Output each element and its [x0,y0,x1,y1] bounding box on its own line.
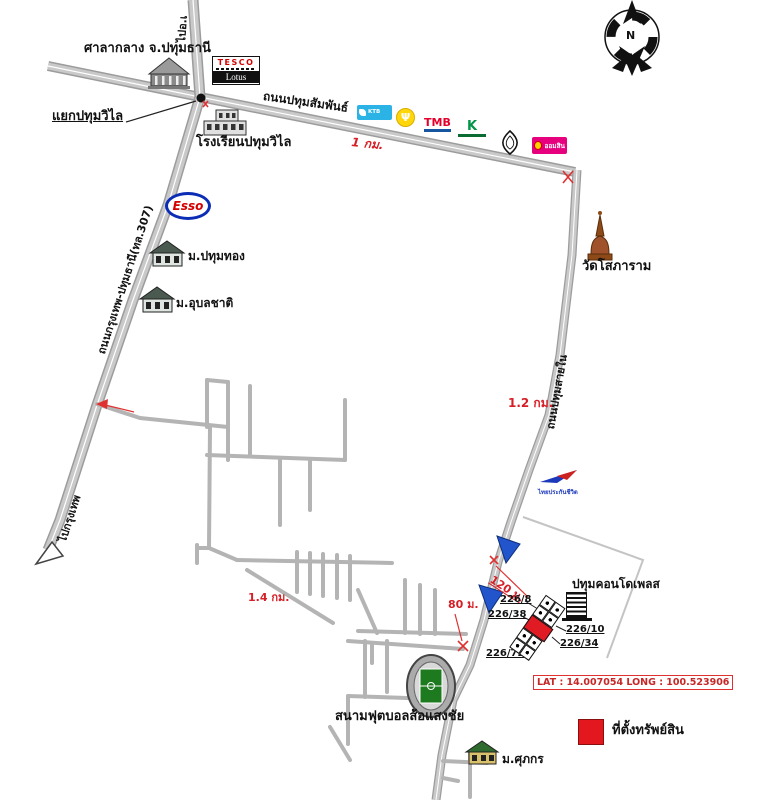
address-226-34: 226/34 [560,639,598,650]
distance-1-4km: 1.4 กม. [248,592,289,604]
condo-building-icon [566,592,587,618]
distance-80m: 80 ม. [448,599,479,611]
junction-pointer-line [126,101,196,122]
distance-1-2km: 1.2 กม. [508,397,553,410]
ktb-bird-icon [359,109,366,116]
moo-supakorn-label: ม.ศุภกร [502,753,544,766]
kasikorn-k-icon: K [458,120,486,133]
tmb-tagline-bar [424,129,451,132]
tesco-lotus-sign: TESCO Lotus [212,56,260,85]
tesco-dashes [216,68,256,70]
thai-life-logo-icon [540,470,577,483]
stadium-label: สนามฟุตบอลส้อแสงชัย [335,710,464,724]
lotus-text: Lotus [213,71,259,83]
ktb-text: KTB [368,110,380,116]
gsb-emblem-icon [534,141,542,150]
address-226-10: 226/10 [566,625,604,636]
ktb-bank-logo: KTB [357,105,392,120]
city-hall-icon [148,58,190,89]
esso-text: Esso [173,199,204,213]
road-label-to-amphoe: ไปอ.เ [176,15,189,43]
condo-building-base [562,618,592,621]
minor-street-lattice [97,380,487,797]
wat-sopharam-label: วัดโสภาราม [582,260,651,274]
condo-label: ปทุมคอนโดเพลส [572,578,660,591]
address-226-38: 226/38 [488,610,526,621]
school-label: โรงเรียนปทุมวิไล [196,136,291,150]
hand-drawn-location-map: ไปอ.เ ศาลากลาง จ.ปทุมธานี แยกปทุมวิไล โร… [0,0,767,800]
bangchak-leaf-icon [503,131,517,154]
tesco-text: TESCO [213,58,259,67]
krungsri-bank-logo: Ψ [396,108,415,127]
legend-property-label: ที่ตั้งทรัพย์สิน [612,724,684,738]
compass-north-letter: N [626,29,635,42]
road-pathum-sai-nai [436,170,577,800]
school-icon [204,110,246,135]
esso-logo: Esso [165,192,211,220]
moo-pathum-thong-label: ม.ปทุมทอง [188,250,245,263]
tmb-bank-logo: TMB [424,117,451,132]
city-hall-label: ศาลากลาง จ.ปทุมธานี [84,42,211,56]
moo-ubon-chat-icon [140,287,174,312]
property-marker-legend-swatch [578,719,604,745]
gsb-text: ออมสิน [544,141,565,151]
to-bangkok-arrow-icon [36,542,63,564]
krungsri-mark-icon: Ψ [401,112,410,123]
road-pathum-samphan [48,66,575,172]
moo-supakorn-icon [466,741,498,764]
junction-label: แยกปทุมวิไล [52,110,123,124]
gsb-bank-logo: ออมสิน [532,137,567,154]
lat-long-box: LAT : 14.007054 LONG : 100.523906 [533,675,733,690]
address-226-8: 226/8 [500,595,531,606]
stadium-icon [407,655,455,717]
wat-sopharam-stupa-icon [588,211,612,260]
kasikorn-bank-logo: K [458,120,486,137]
kasikorn-tagline-bar [458,134,486,137]
thai-life-text: ไทยประกันชีวิต [538,487,578,497]
moo-ubon-chat-label: ม.อุบลชาติ [176,297,233,310]
distance-1km: 1 กม. [351,136,384,152]
tmb-text: TMB [424,117,451,128]
